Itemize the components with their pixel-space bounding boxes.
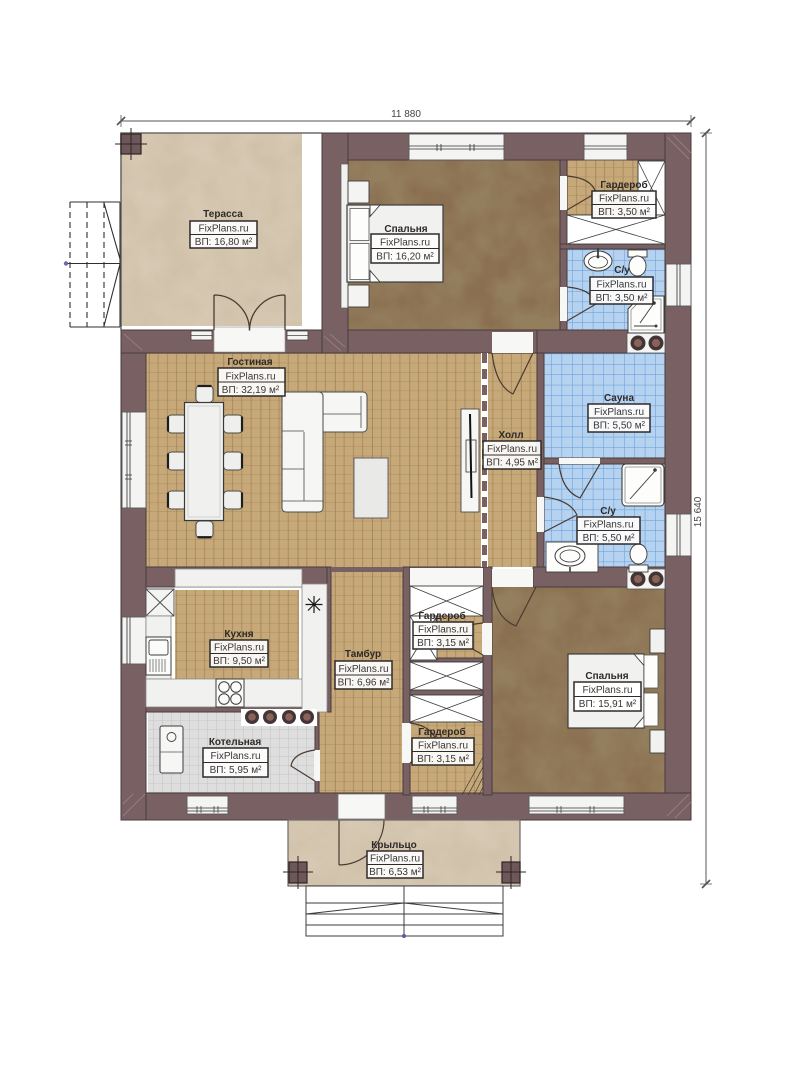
svg-text:FixPlans.ru: FixPlans.ru <box>370 854 420 865</box>
svg-text:С/у: С/у <box>600 506 616 517</box>
svg-text:Тамбур: Тамбур <box>345 648 381 660</box>
svg-text:Сауна: Сауна <box>604 393 635 404</box>
svg-text:ВП: 3,15 м²: ВП: 3,15 м² <box>417 638 470 649</box>
svg-text:ВП: 9,50 м²: ВП: 9,50 м² <box>213 656 266 667</box>
svg-text:ВП: 5,50 м²: ВП: 5,50 м² <box>583 533 636 544</box>
svg-text:Холл: Холл <box>498 430 523 441</box>
svg-text:Гардероб: Гардероб <box>600 179 647 191</box>
svg-text:Гардероб: Гардероб <box>418 610 465 622</box>
svg-text:ВП: 6,53 м²: ВП: 6,53 м² <box>369 867 422 878</box>
svg-text:FixPlans.ru: FixPlans.ru <box>338 664 388 675</box>
svg-text:Гостиная: Гостиная <box>227 357 272 368</box>
svg-text:FixPlans.ru: FixPlans.ru <box>487 444 537 455</box>
svg-text:FixPlans.ru: FixPlans.ru <box>583 520 633 531</box>
svg-text:FixPlans.ru: FixPlans.ru <box>418 741 468 752</box>
svg-text:ВП: 4,95 м²: ВП: 4,95 м² <box>486 458 539 469</box>
svg-text:FixPlans.ru: FixPlans.ru <box>380 238 430 249</box>
svg-text:FixPlans.ru: FixPlans.ru <box>599 194 649 205</box>
svg-text:ВП: 16,20 м²: ВП: 16,20 м² <box>376 252 434 263</box>
svg-text:ВП: 5,50 м²: ВП: 5,50 м² <box>593 421 646 432</box>
svg-text:ВП: 3,50 м²: ВП: 3,50 м² <box>596 293 649 304</box>
svg-text:ВП: 15,91 м²: ВП: 15,91 м² <box>579 699 637 710</box>
svg-text:ВП: 5,95 м²: ВП: 5,95 м² <box>210 765 263 776</box>
svg-text:FixPlans.ru: FixPlans.ru <box>418 625 468 636</box>
svg-text:FixPlans.ru: FixPlans.ru <box>225 372 275 383</box>
svg-text:ВП: 16,80 м²: ВП: 16,80 м² <box>195 237 253 248</box>
svg-text:Терасса: Терасса <box>203 209 243 220</box>
svg-text:Крыльцо: Крыльцо <box>371 840 417 851</box>
svg-text:15 640: 15 640 <box>693 496 704 527</box>
svg-text:FixPlans.ru: FixPlans.ru <box>210 751 260 762</box>
svg-text:ВП: 3,15 м²: ВП: 3,15 м² <box>417 754 470 765</box>
svg-text:Котельная: Котельная <box>209 737 262 748</box>
svg-text:ВП: 32,19 м²: ВП: 32,19 м² <box>222 385 280 396</box>
svg-text:FixPlans.ru: FixPlans.ru <box>214 643 264 654</box>
svg-text:FixPlans.ru: FixPlans.ru <box>198 224 248 235</box>
svg-text:FixPlans.ru: FixPlans.ru <box>582 685 632 696</box>
svg-text:FixPlans.ru: FixPlans.ru <box>596 280 646 291</box>
svg-text:FixPlans.ru: FixPlans.ru <box>594 407 644 418</box>
svg-text:ВП: 3,50 м²: ВП: 3,50 м² <box>598 207 651 218</box>
svg-text:Кухня: Кухня <box>224 629 253 640</box>
svg-text:ВП: 6,96 м²: ВП: 6,96 м² <box>338 678 391 689</box>
svg-text:11 880: 11 880 <box>391 109 421 120</box>
svg-text:Гардероб: Гардероб <box>418 726 465 738</box>
svg-text:Спальня: Спальня <box>585 671 628 682</box>
svg-text:С/у: С/у <box>614 265 630 276</box>
